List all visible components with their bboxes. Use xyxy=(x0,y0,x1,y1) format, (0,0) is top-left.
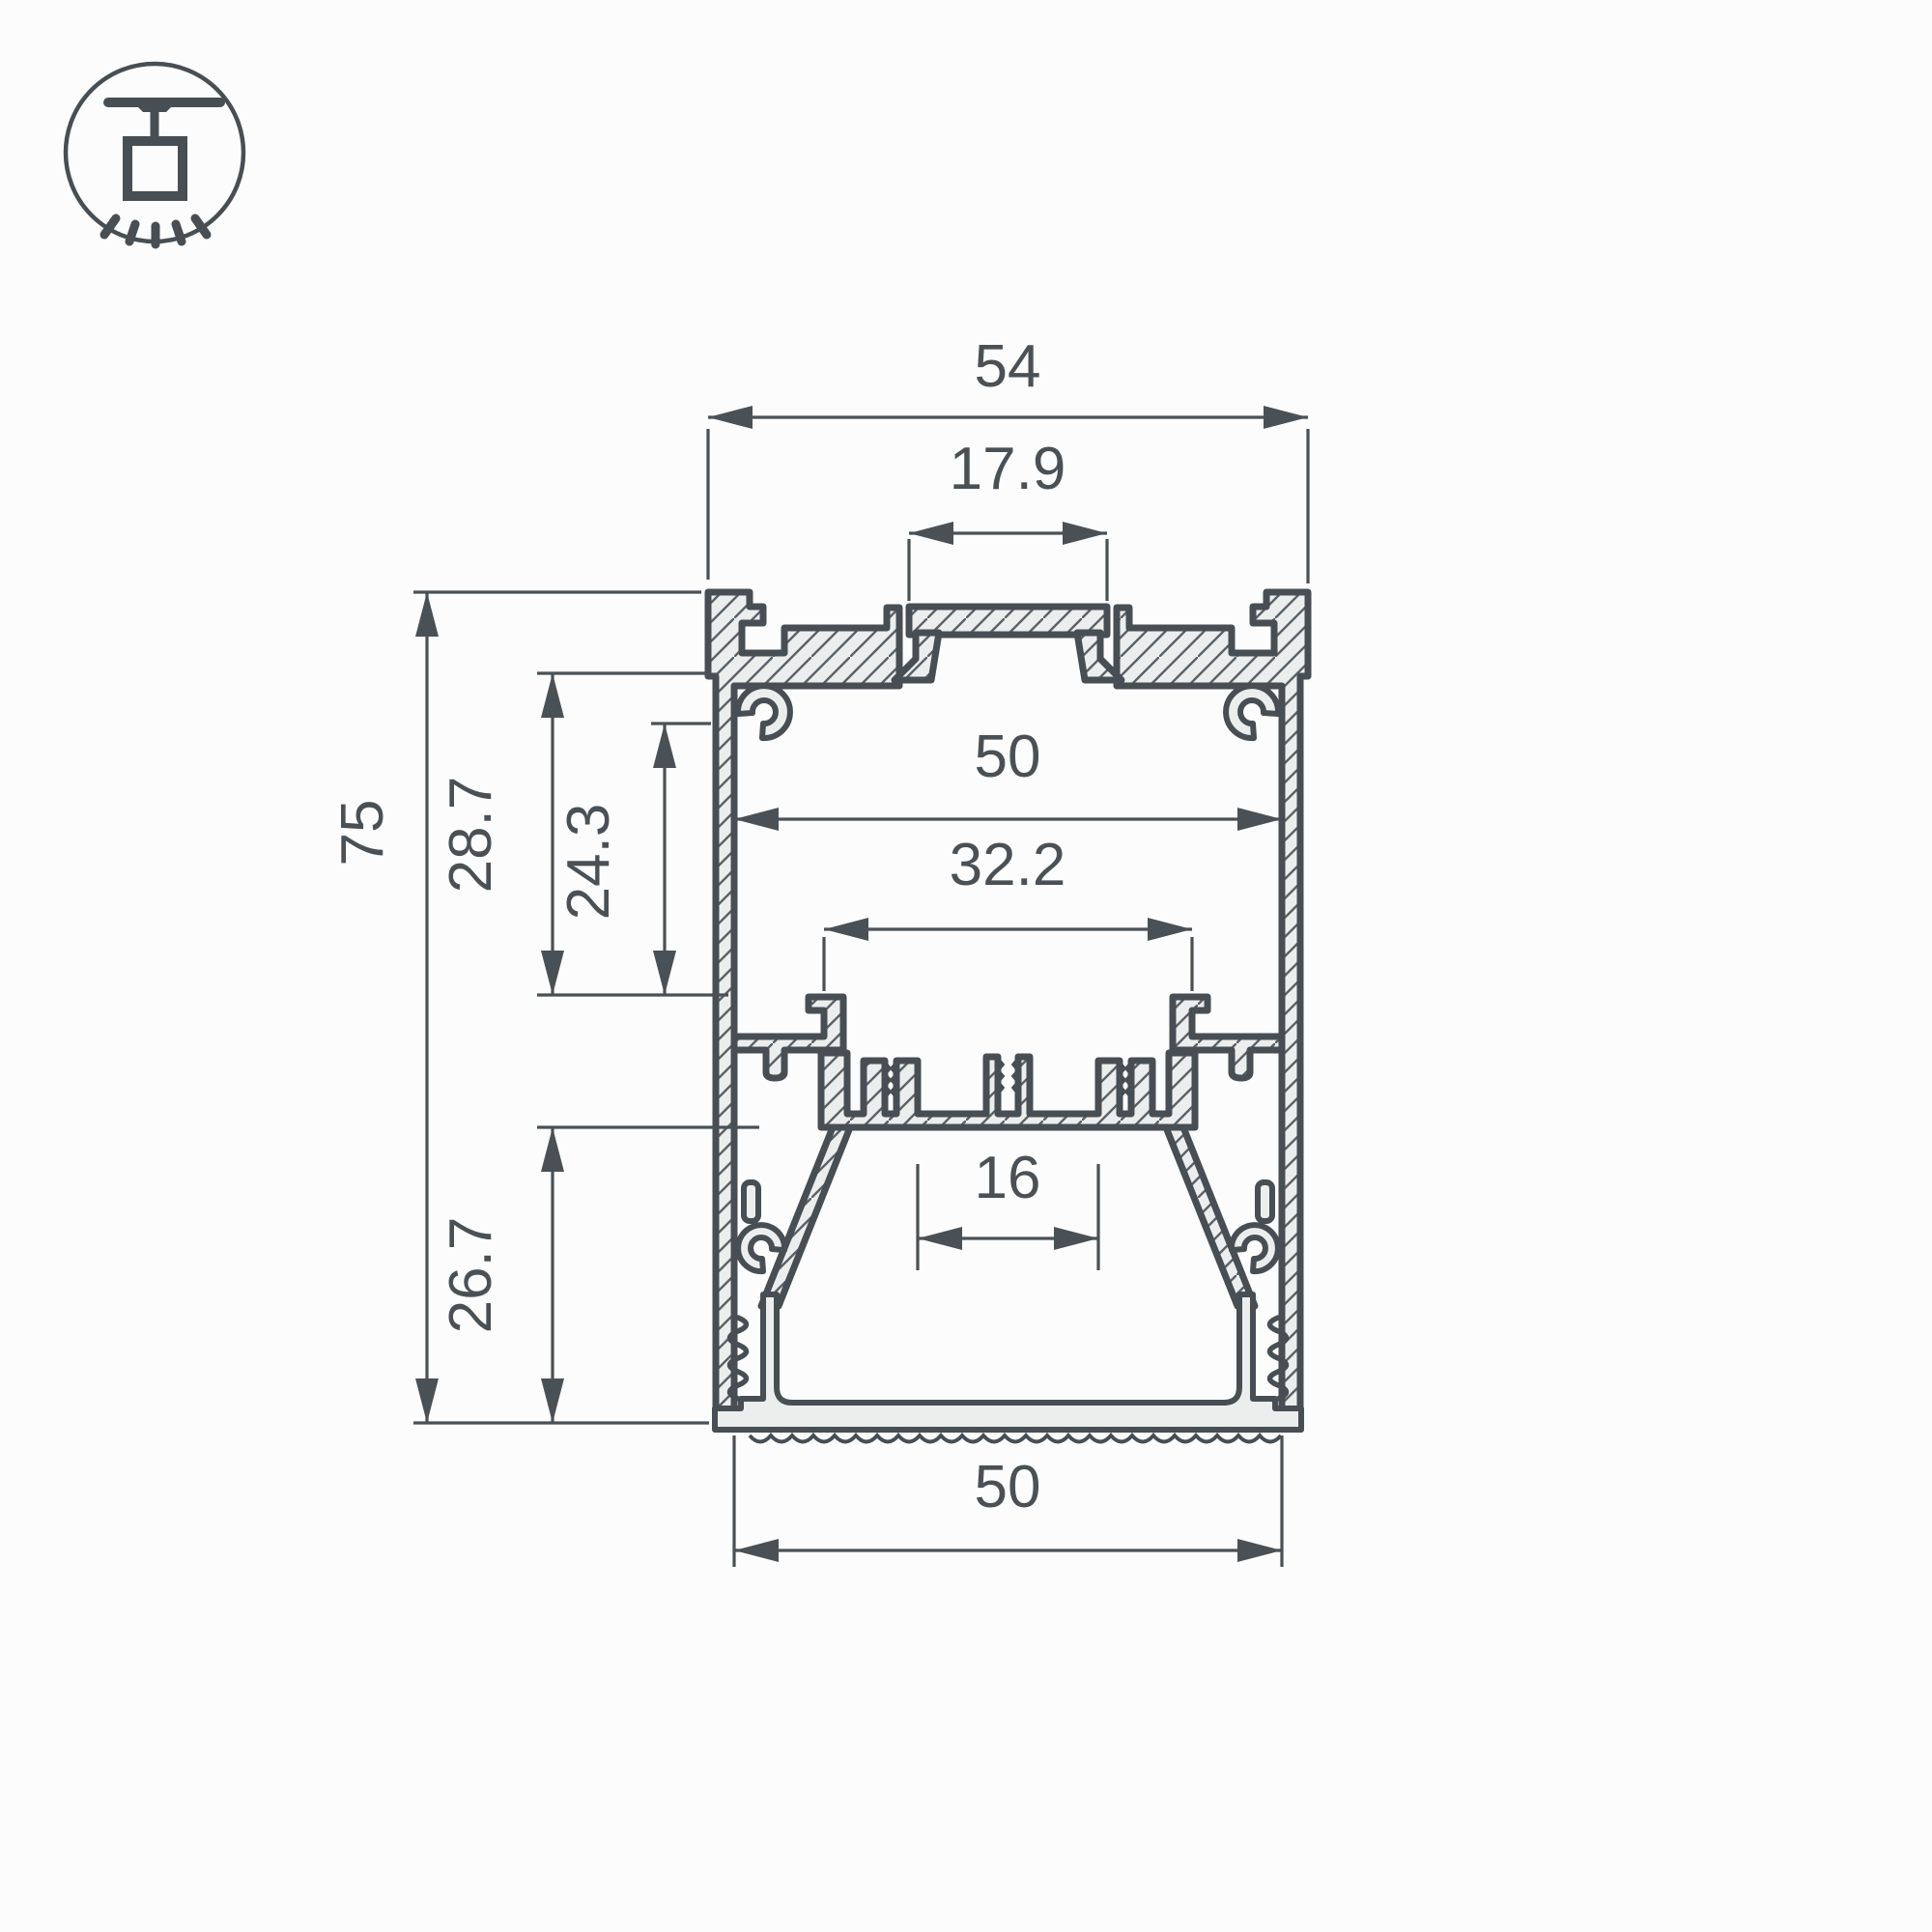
profile-right-wall xyxy=(1117,592,1308,1422)
dim-slot-width-label: 17.9 xyxy=(950,436,1066,502)
dim-inner-width-label: 50 xyxy=(975,724,1041,790)
profile-left-wall xyxy=(708,592,899,1422)
profile-led-plate xyxy=(821,1053,1195,1127)
dim-lower-depth-label: 26.7 xyxy=(438,1217,504,1334)
lower-right-hook-finger xyxy=(1258,1182,1272,1221)
screw-channel-serrations xyxy=(885,1059,1131,1097)
dimension-arrowheads xyxy=(415,406,1308,1562)
dimension-labels: 54 17.9 50 32.2 16 50 75 28.7 24.3 26.7 xyxy=(329,333,1065,1520)
lower-left-hook-finger xyxy=(744,1182,758,1221)
icon-fixture-box xyxy=(128,141,183,196)
diffuser-texture-ripple xyxy=(750,1435,1281,1442)
dim-upper-depth-label: 28.7 xyxy=(438,777,504,894)
profile-right-strut xyxy=(1166,1127,1255,1306)
diffuser-clip-serrations xyxy=(730,1318,1287,1399)
icon-circle xyxy=(66,64,243,241)
profile-cross-section-drawing: 54 17.9 50 32.2 16 50 75 28.7 24.3 26.7 xyxy=(0,0,1932,1932)
dim-bottom-width-label: 50 xyxy=(975,1454,1041,1520)
upper-left-screw-boss xyxy=(738,686,790,738)
profile-left-strut xyxy=(761,1127,850,1306)
technical-drawing-page: 54 17.9 50 32.2 16 50 75 28.7 24.3 26.7 xyxy=(0,0,1932,1932)
bottom-diffuser-cover xyxy=(715,1294,1301,1430)
dim-top-width-label: 54 xyxy=(975,333,1041,400)
suspended-luminaire-mount-icon xyxy=(66,64,243,244)
dim-overall-height-label: 75 xyxy=(329,800,396,867)
dim-mid-depth-label: 24.3 xyxy=(555,804,622,921)
upper-right-screw-boss xyxy=(1226,686,1278,738)
dim-led-channel-width-label: 16 xyxy=(975,1145,1041,1211)
dim-opening-width-label: 32.2 xyxy=(950,832,1066,898)
